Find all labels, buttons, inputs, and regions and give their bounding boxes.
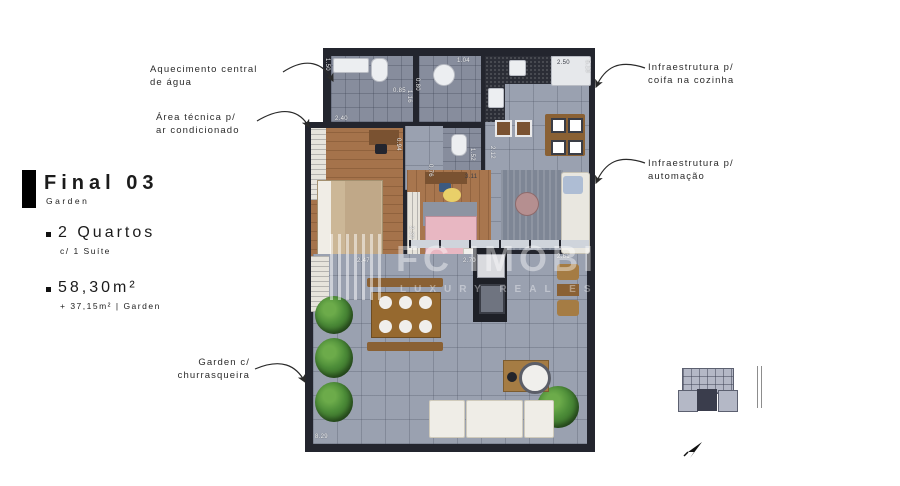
washer: [433, 64, 455, 86]
feature-area: 58,30m²: [58, 279, 138, 297]
annotation-garden: Garden c/ churrasqueira: [150, 357, 250, 383]
garden-bush: [315, 382, 353, 422]
dining-chair: [551, 140, 566, 155]
annotation-line: ar condicionado: [156, 125, 240, 138]
annotation-line: coifa na cozinha: [648, 75, 734, 88]
floor-plan: 1.50 0.85 2.40 1.16 1.04 0.80 0.76 1.52 …: [305, 30, 617, 452]
garden-stool: [557, 300, 579, 316]
dimension-label: 2.61: [557, 254, 570, 260]
dimension-label: 2.40: [335, 116, 348, 122]
annotation-coifa: Infraestrutura p/ coifa na cozinha: [648, 62, 734, 88]
arrow-area-tecnica: [257, 112, 309, 127]
dimension-label: 0.94: [395, 138, 401, 151]
dimension-label: 1.04: [457, 58, 470, 64]
annotation-line: Infraestrutura p/: [648, 158, 734, 171]
annotation-aquecimento: Aquecimento central de água: [150, 64, 258, 90]
toilet: [371, 58, 388, 82]
dimension-label: 1.16: [406, 90, 412, 103]
arrow-garden: [255, 364, 305, 382]
dimension-label: 2.12: [489, 146, 495, 159]
accent-bar: [22, 170, 36, 208]
garden-bench: [367, 342, 443, 351]
annotation-line: de água: [150, 77, 258, 90]
dimension-label: 3.11: [465, 174, 477, 180]
dimension-label: 2.70: [463, 258, 476, 264]
garden-stool: [557, 264, 579, 280]
keyplan-divider: [757, 366, 762, 408]
garden-chair: [379, 320, 392, 333]
suite-bed-pillows: [318, 181, 331, 265]
dimension-label: 0.76: [427, 164, 433, 177]
garden-bush: [315, 296, 353, 334]
dimension-label: 2.50: [557, 60, 570, 66]
garden-bush: [315, 338, 353, 378]
dining-chair: [568, 140, 583, 155]
dimension-label: 5.10: [584, 60, 590, 73]
lounge-seat: [429, 400, 465, 438]
annotation-line: churrasqueira: [150, 370, 250, 383]
dimension-label: 0.80: [414, 78, 420, 91]
key-plan: [678, 364, 748, 434]
dimension-label: 1.50: [324, 58, 330, 71]
sliding-door: [409, 240, 589, 248]
bar-stool: [515, 120, 532, 137]
dimension-label: 8.29: [315, 434, 328, 440]
garden-chair: [399, 296, 412, 309]
keyplan-building-left: [678, 390, 698, 412]
floorplan-page: Final 03 Garden 2 Quartos c/ 1 Suíte 58,…: [0, 0, 900, 486]
lounge-seat: [524, 400, 554, 438]
desk-chair: [375, 144, 387, 154]
round-grill: [519, 362, 551, 394]
annotation-line: Área técnica p/: [156, 112, 240, 125]
annotation-line: Aquecimento central: [150, 64, 258, 77]
annotation-line: Garden c/: [150, 357, 250, 370]
garden-side-table: [557, 284, 579, 296]
stove: [488, 88, 504, 108]
suite-bed-blanket: [345, 181, 381, 265]
churrasqueira-counter: [477, 254, 505, 278]
garden-bench: [367, 278, 443, 287]
garden-chair: [399, 320, 412, 333]
round-rug: [443, 188, 461, 202]
wc-toilet: [451, 134, 467, 156]
unit-title: Final 03: [44, 172, 158, 195]
coffee-table: [515, 192, 539, 216]
bullet-icon: [46, 232, 51, 237]
feature-bedrooms-sub: c/ 1 Suíte: [60, 246, 111, 256]
garden-chair: [419, 320, 432, 333]
sofa-pillows: [563, 176, 583, 194]
bar-stool: [495, 120, 512, 137]
annotation-line: automação: [648, 171, 734, 184]
garden-chair: [419, 296, 432, 309]
dimension-label: 0.85: [393, 88, 406, 94]
kitchen-sink: [509, 60, 526, 76]
annotation-automacao: Infraestrutura p/ automação: [648, 158, 734, 184]
north-arrow-icon: [682, 440, 706, 462]
feature-bedrooms: 2 Quartos: [58, 224, 155, 242]
bathroom-sink-counter: [333, 58, 369, 73]
bedroom2-wardrobe: [407, 192, 420, 258]
dimension-label: 2.39: [408, 226, 414, 239]
dining-chair: [551, 118, 566, 133]
lounge-sofa: [466, 400, 523, 438]
keyplan-highlighted-unit: [697, 389, 717, 411]
grill-pot: [507, 372, 517, 382]
annotation-line: Infraestrutura p/: [648, 62, 734, 75]
grill-door: [479, 284, 505, 314]
bullet-icon: [46, 287, 51, 292]
dimension-label: 2.47: [357, 258, 370, 264]
dimension-label: 1.52: [469, 148, 475, 161]
garden-chair: [379, 296, 392, 309]
annotation-area-tecnica: Área técnica p/ ar condicionado: [156, 112, 240, 138]
feature-area-sub: + 37,15m² | Garden: [60, 301, 161, 311]
keyplan-building-right: [718, 390, 738, 412]
unit-subtitle: Garden: [46, 196, 89, 206]
dining-chair: [568, 118, 583, 133]
